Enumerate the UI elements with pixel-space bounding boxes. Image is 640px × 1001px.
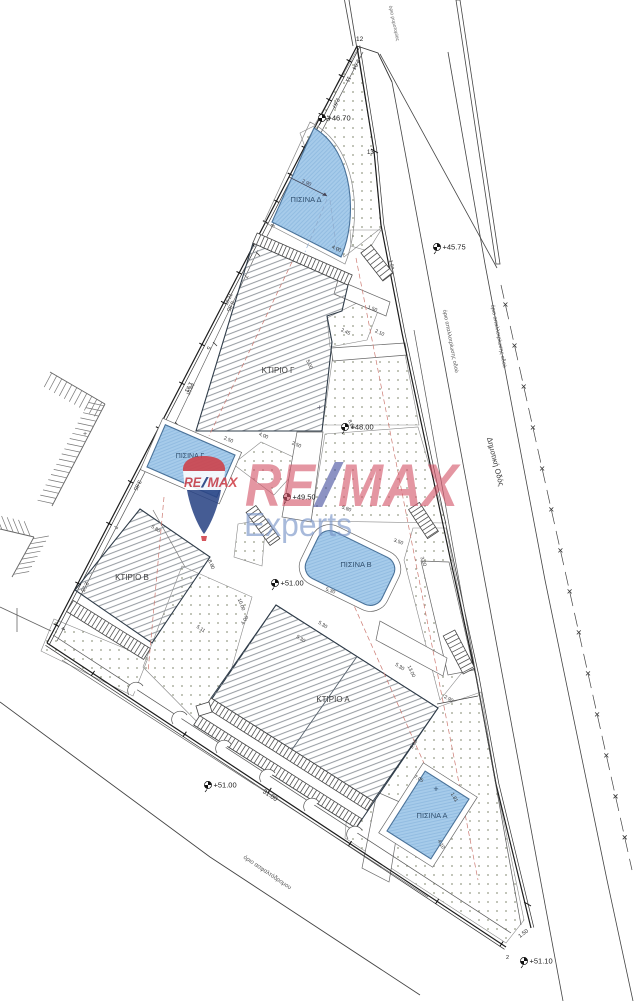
svg-text:MAX: MAX <box>208 475 239 490</box>
svg-text:+51.00: +51.00 <box>214 781 237 790</box>
svg-text:ΚΤΙΡΙΟ Α: ΚΤΙΡΙΟ Α <box>316 695 350 704</box>
svg-text:ΚΤΙΡΙΟ Γ: ΚΤΙΡΙΟ Γ <box>262 366 295 375</box>
svg-text:ΠΙΣΙΝΑ Β: ΠΙΣΙΝΑ Β <box>340 560 371 569</box>
svg-text:Experts: Experts <box>244 506 352 543</box>
svg-text:+45.75: +45.75 <box>443 243 466 252</box>
svg-text:ΚΤΙΡΙΟ Β: ΚΤΙΡΙΟ Β <box>115 573 149 582</box>
svg-text:+51.00: +51.00 <box>281 579 304 588</box>
svg-text:ΠΙΣΙΝΑ Δ: ΠΙΣΙΝΑ Δ <box>291 195 322 204</box>
svg-text:+: + <box>433 784 438 794</box>
svg-text:+: + <box>317 403 322 412</box>
svg-text:RE: RE <box>184 475 202 490</box>
svg-text:MAX: MAX <box>338 452 462 519</box>
svg-text:2: 2 <box>506 955 509 961</box>
svg-text:+51.10: +51.10 <box>530 957 553 966</box>
svg-text:+48.00: +48.00 <box>351 423 374 432</box>
svg-text:ΠΙΣΙΝΑ Α: ΠΙΣΙΝΑ Α <box>417 811 448 820</box>
svg-text:+: + <box>83 431 87 438</box>
svg-text:12: 12 <box>356 36 364 43</box>
svg-text:+46.70: +46.70 <box>328 114 351 123</box>
svg-text:13: 13 <box>367 150 374 156</box>
